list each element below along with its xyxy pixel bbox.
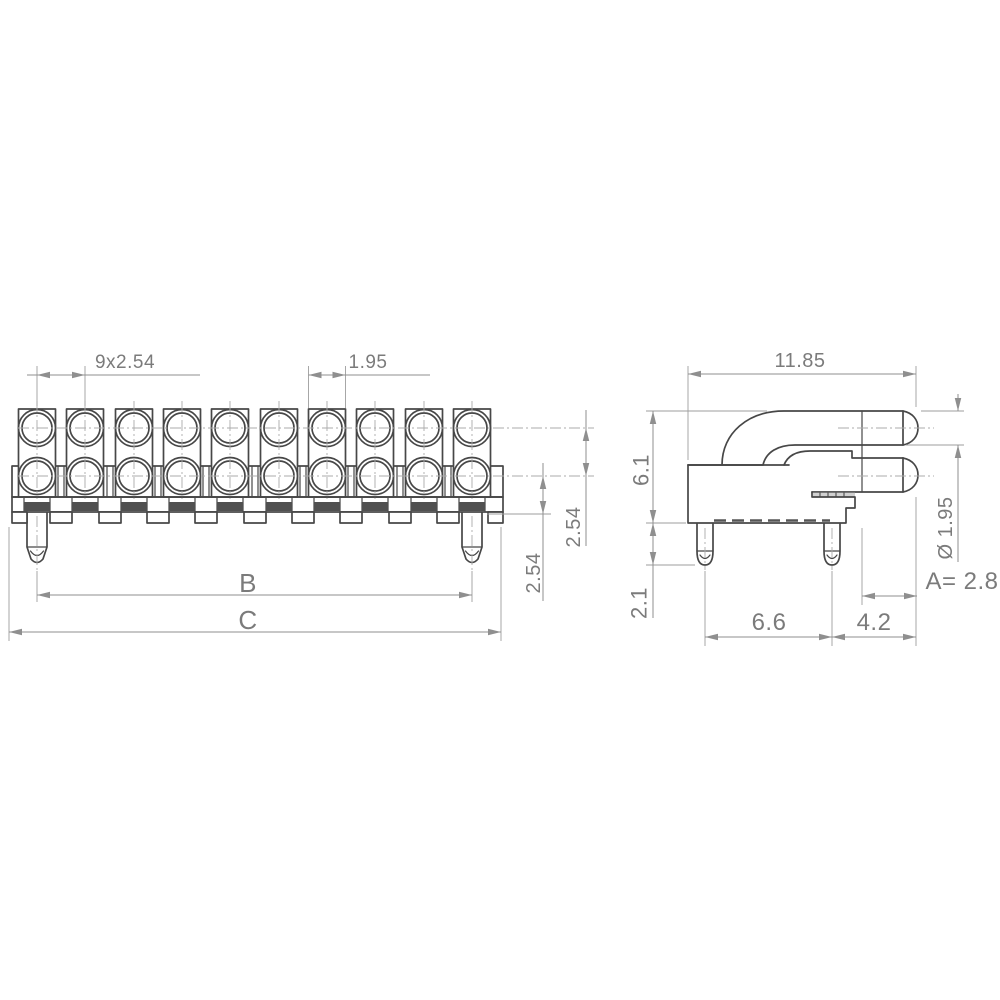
- dim-label-height: 6.1: [629, 454, 654, 486]
- base-feet: [12, 512, 503, 523]
- side-view-dimensions: 11.85 6.1 2.1 6.6 4.2 Ø 1.95 A= 2.8: [627, 350, 999, 646]
- dim-label-pin-to-front: 6.6: [752, 609, 787, 636]
- contact-pads: [24, 498, 485, 512]
- dim-label-pin-length: 2.1: [627, 587, 652, 619]
- dim-label-row-offset: 2.54: [523, 553, 545, 594]
- dim-label-row-pitch: 2.54: [563, 507, 585, 548]
- technical-drawing-page: 9x2.54 1.95 2.54 2.54 B C: [0, 0, 1000, 1000]
- dim-label-lens-width: 1.95: [349, 352, 388, 373]
- dim-label-overall-width: C: [238, 605, 257, 635]
- side-view: [688, 411, 934, 570]
- side-pins: [697, 523, 840, 570]
- dim-label-lens-diameter: Ø 1.95: [935, 496, 957, 559]
- dim-label-pin-span: B: [239, 568, 257, 598]
- upper-light-pipe: [688, 411, 918, 465]
- dim-label-front-to-tip: 4.2: [857, 609, 892, 636]
- dim-label-depth: 11.85: [774, 350, 825, 372]
- front-view: [12, 401, 594, 570]
- led-holder-dimension-drawing: 9x2.54 1.95 2.54 2.54 B C: [0, 0, 1000, 1000]
- dim-label-pitch: 9x2.54: [95, 352, 155, 373]
- dim-label-protrusion: A= 2.8: [925, 568, 998, 595]
- lower-light-pipe-dome: [812, 458, 918, 492]
- lower-light-pipe-top: [784, 451, 903, 465]
